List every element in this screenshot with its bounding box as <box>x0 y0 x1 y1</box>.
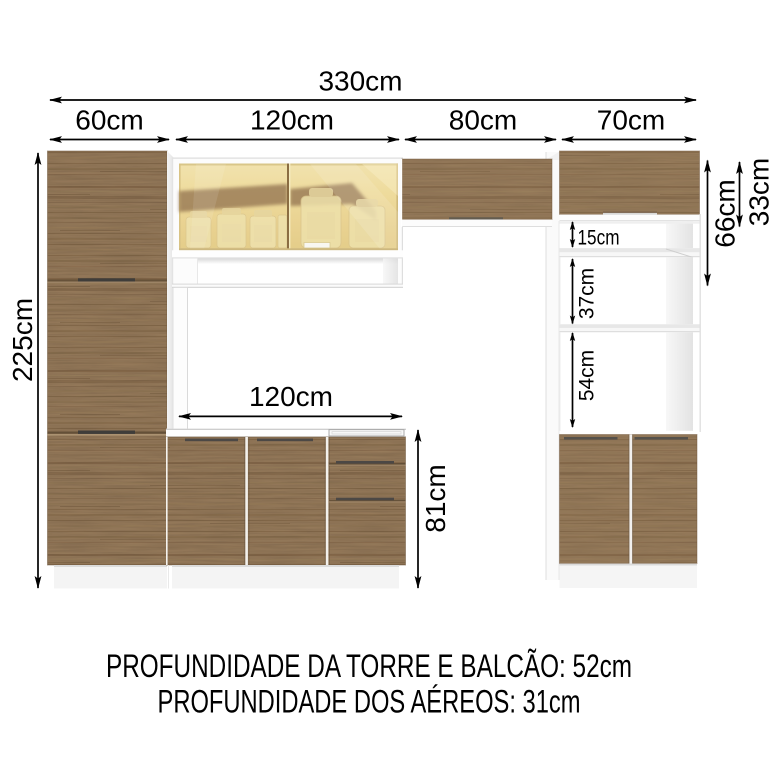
svg-text:120cm: 120cm <box>250 105 334 136</box>
svg-text:120cm: 120cm <box>249 381 333 412</box>
svg-text:54cm: 54cm <box>576 350 599 401</box>
svg-text:PROFUNDIDADE DA TORRE E BALCÃO: PROFUNDIDADE DA TORRE E BALCÃO: 52cm <box>106 648 632 684</box>
svg-text:70cm: 70cm <box>597 105 665 136</box>
svg-text:80cm: 80cm <box>449 105 517 136</box>
svg-text:37cm: 37cm <box>576 268 599 319</box>
svg-text:33cm: 33cm <box>744 158 775 226</box>
svg-text:15cm: 15cm <box>578 227 620 250</box>
svg-text:81cm: 81cm <box>420 464 451 532</box>
svg-text:225cm: 225cm <box>7 298 38 382</box>
svg-text:66cm: 66cm <box>710 179 741 247</box>
svg-text:330cm: 330cm <box>318 66 402 97</box>
svg-text:60cm: 60cm <box>75 105 143 136</box>
svg-text:PROFUNDIDADE DOS AÉREOS: 31cm: PROFUNDIDADE DOS AÉREOS: 31cm <box>158 684 581 720</box>
